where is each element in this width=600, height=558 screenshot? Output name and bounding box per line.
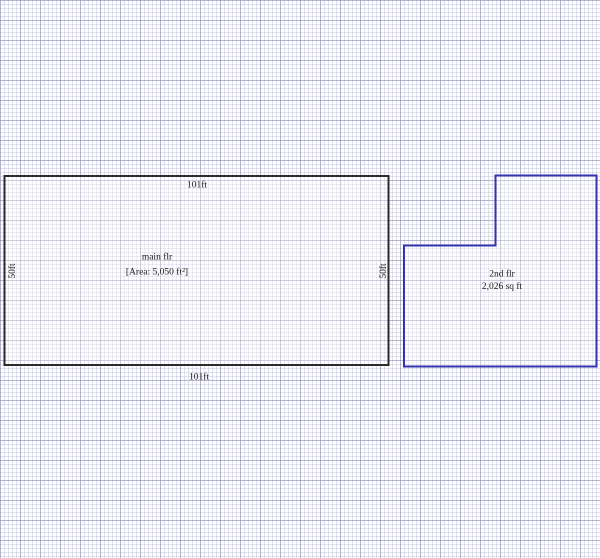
graph-paper-canvas: 101ft 101ft 50ft 50ft main flr [Area: 5,…	[0, 0, 600, 558]
main-floor-bottom-dimension-label: 101ft	[189, 372, 209, 383]
main-floor-right-dimension-label: 50ft	[378, 263, 389, 279]
second-floor-name-label: 2nd flr	[489, 269, 515, 280]
main-floor-name-label: main flr	[142, 252, 173, 263]
floorplan-drawing: 101ft 101ft 50ft 50ft main flr [Area: 5,…	[0, 0, 600, 558]
main-floor-top-dimension-label: 101ft	[187, 180, 207, 191]
main-floor-area-label: [Area: 5,050 ft²]	[126, 267, 188, 278]
main-floor-left-dimension-label: 50ft	[7, 263, 18, 279]
second-floor-area-label: 2,026 sq ft	[482, 281, 523, 292]
main-floor-outline	[5, 176, 389, 365]
